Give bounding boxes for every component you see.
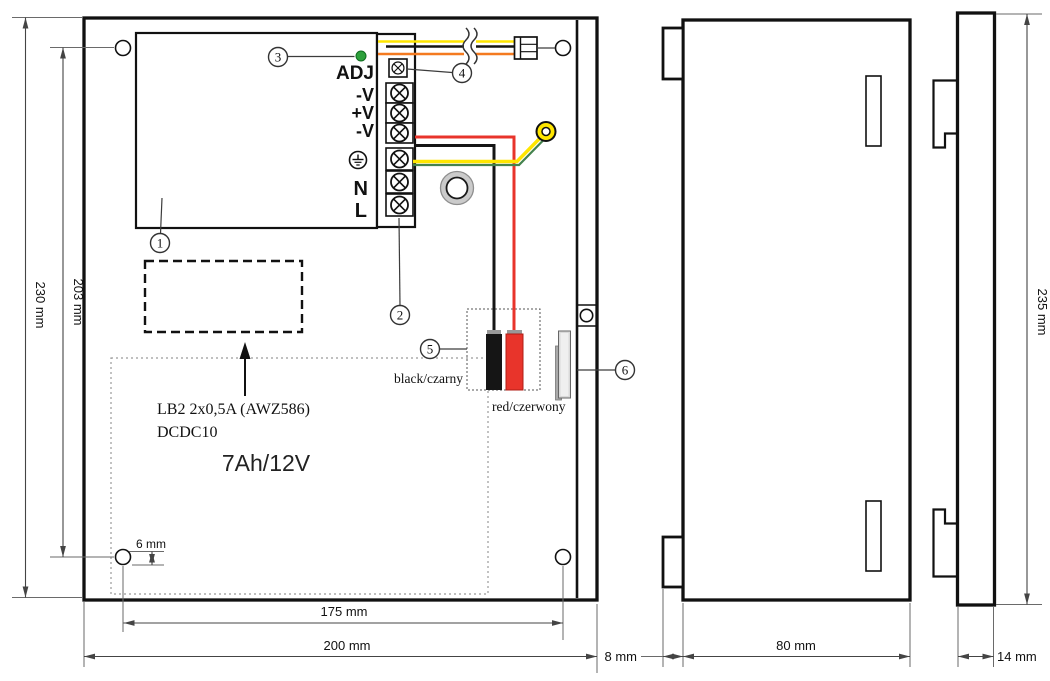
module-label-line2: DCDC10 — [157, 424, 217, 441]
dim-side-height: 235 mm — [1035, 289, 1050, 336]
screw-terminal-icon — [391, 174, 408, 191]
dim-tab-depth: 8 mm — [605, 649, 638, 664]
side-mounting-tab-bottom — [663, 537, 683, 587]
side-mounting-tab-top — [663, 28, 683, 79]
screw-terminal-icon — [391, 151, 408, 168]
callout-4-number: 4 — [459, 66, 466, 81]
door-bracket-bottom — [934, 510, 958, 577]
terminal-label-adj: ADJ — [336, 63, 374, 84]
screw-terminal-icon — [391, 125, 408, 142]
battery-connector-red — [506, 334, 523, 390]
power-led-icon — [356, 51, 366, 61]
callout-2-number: 2 — [397, 308, 404, 323]
dim-hole-diameter: 6 mm — [136, 537, 166, 551]
dim-holes-width: 175 mm — [321, 604, 368, 619]
terminal-label-l: L — [355, 200, 367, 222]
mounting-hole-bottom-left — [116, 550, 131, 565]
callout-1-number: 1 — [157, 236, 164, 251]
mounting-hole-top-right — [556, 41, 571, 56]
terminal-screws-ac — [386, 148, 413, 216]
terminal-screws-dc — [386, 83, 413, 143]
module-label-line1: LB2 2x0,5A (AWZ586) — [157, 401, 310, 418]
dim-holes-height: 203 mm — [71, 279, 86, 326]
terminal-label-minus-v2: -V — [356, 121, 374, 141]
earth-ring-terminal-icon — [537, 122, 556, 141]
door-bracket-top — [934, 81, 958, 148]
battery-connector-black — [486, 334, 502, 390]
terminal-label-plus-v: +V — [351, 103, 374, 123]
screw-terminal-icon — [391, 197, 408, 214]
cable-grommet-icon — [441, 172, 474, 205]
dim-door-depth: 14 mm — [997, 649, 1037, 664]
side-door-outline — [958, 13, 995, 605]
screw-terminal-icon — [391, 105, 408, 122]
side-vent-slot-top — [866, 76, 881, 146]
mounting-hole-top-left — [116, 41, 131, 56]
adj-potentiometer-screw-icon — [392, 62, 404, 74]
callout-3-number: 3 — [275, 50, 282, 65]
callout-6-number: 6 — [622, 363, 629, 378]
earth-symbol-icon — [350, 152, 367, 169]
red-wire-label: red/czerwony — [492, 399, 566, 414]
mounting-hole-bottom-right — [556, 550, 571, 565]
side-vent-slot-bottom — [866, 501, 881, 571]
diagram-canvas: ADJ -V +V -V N L — [0, 0, 1050, 681]
battery-capacity-label: 7Ah/12V — [222, 450, 311, 476]
dim-front-height: 230 mm — [33, 282, 48, 329]
front-view: ADJ -V +V -V N L — [84, 18, 597, 600]
terminal-label-minus-v: -V — [356, 85, 374, 105]
dim-body-depth: 80 mm — [776, 638, 816, 653]
side-view — [663, 13, 995, 605]
screw-terminal-icon — [391, 85, 408, 102]
black-wire-label: black/czarny — [394, 371, 463, 386]
callout-5-number: 5 — [427, 342, 434, 357]
dim-front-width: 200 mm — [324, 638, 371, 653]
wire-break-icon — [463, 28, 477, 64]
terminal-label-n: N — [354, 178, 368, 200]
enclosure-mounting-diagram: ADJ -V +V -V N L — [0, 0, 1050, 681]
